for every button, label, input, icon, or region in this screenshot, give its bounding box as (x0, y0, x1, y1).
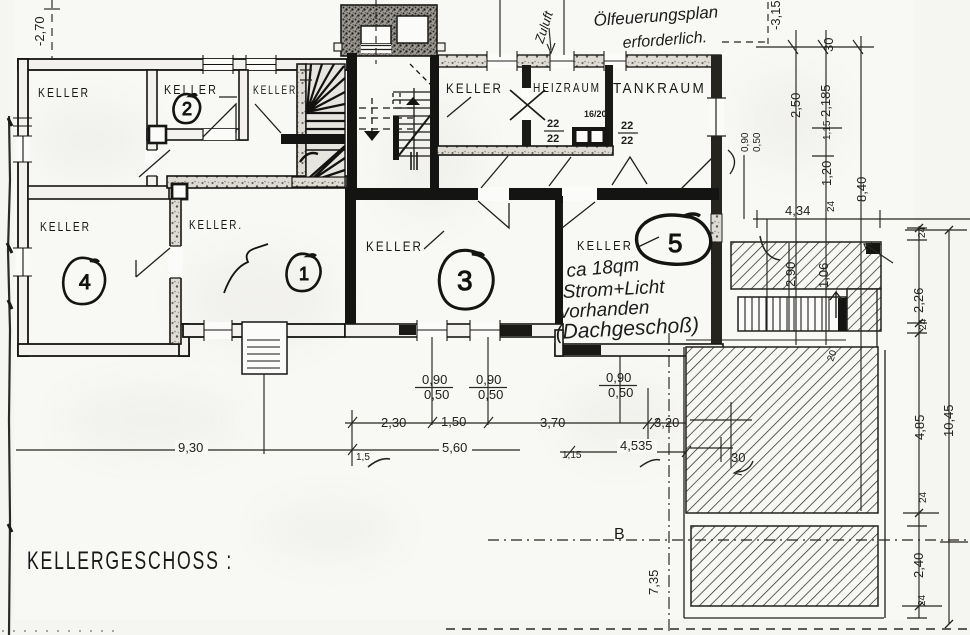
svg-text:24: 24 (918, 491, 929, 503)
svg-text:0,90: 0,90 (606, 370, 631, 385)
svg-text:0,50: 0,50 (424, 387, 449, 402)
svg-text:KELLER.: KELLER. (189, 217, 243, 232)
svg-text:1: 1 (299, 264, 309, 284)
svg-text:22: 22 (547, 133, 559, 145)
svg-text:2,50: 2,50 (788, 93, 803, 118)
svg-text:3: 3 (457, 265, 473, 296)
svg-text:KELLER: KELLER (38, 85, 90, 100)
svg-text:0,90: 0,90 (422, 372, 447, 387)
svg-text:KELLER: KELLER (40, 219, 91, 234)
svg-text:2,40: 2,40 (911, 553, 926, 578)
svg-text:1,06: 1,06 (816, 263, 831, 288)
svg-text:1,15: 1,15 (562, 450, 582, 461)
svg-text:8,40: 8,40 (854, 177, 869, 202)
svg-text:9,30: 9,30 (178, 440, 203, 455)
svg-text:2: 2 (182, 99, 192, 119)
svg-text:KELLER: KELLER (366, 238, 423, 254)
svg-text:0,90: 0,90 (740, 132, 751, 152)
svg-text:2,90: 2,90 (783, 262, 798, 287)
svg-text:1,20: 1,20 (819, 161, 834, 186)
svg-text:16/20: 16/20 (584, 109, 607, 119)
svg-text:HEIZRAUM: HEIZRAUM (533, 80, 601, 95)
svg-text:KELLER: KELLER (577, 238, 633, 253)
svg-text:1,15: 1,15 (822, 120, 833, 140)
svg-text:0,90: 0,90 (476, 372, 501, 387)
svg-text:22: 22 (621, 120, 633, 132)
svg-text:30: 30 (821, 38, 836, 52)
svg-text:1,50: 1,50 (441, 414, 466, 429)
svg-text:KELLERGESCHOSS :: KELLERGESCHOSS : (27, 547, 233, 575)
svg-text:0,50: 0,50 (478, 387, 503, 402)
svg-text:4,535: 4,535 (620, 438, 653, 453)
svg-text:22: 22 (547, 118, 559, 130)
svg-text:3,20: 3,20 (654, 415, 679, 430)
svg-text:-2,70: -2,70 (32, 16, 47, 46)
svg-text:-3,15: -3,15 (768, 0, 783, 30)
svg-text:3,70: 3,70 (540, 415, 565, 430)
svg-text:B: B (614, 526, 625, 543)
svg-text:4: 4 (79, 271, 91, 294)
svg-text:0,50: 0,50 (752, 132, 763, 152)
svg-text:TANKRAUM: TANKRAUM (613, 80, 706, 97)
svg-text:24: 24 (826, 200, 837, 212)
svg-text:KELLER: KELLER (446, 80, 503, 96)
svg-text:22: 22 (621, 135, 633, 147)
svg-text:30: 30 (731, 450, 745, 465)
svg-text:24: 24 (917, 594, 928, 606)
svg-text:KELLER: KELLER (253, 83, 297, 97)
svg-text:10,45: 10,45 (941, 404, 956, 437)
svg-text:5,60: 5,60 (442, 440, 467, 455)
svg-text:24: 24 (917, 226, 928, 238)
svg-text:2,30: 2,30 (381, 415, 406, 430)
svg-text:0,50: 0,50 (608, 385, 633, 400)
svg-text:1,5: 1,5 (356, 452, 370, 463)
svg-text:4,85: 4,85 (912, 415, 927, 440)
svg-text:2,185: 2,185 (818, 84, 833, 117)
svg-text:4,34: 4,34 (785, 203, 810, 218)
svg-text:7,35: 7,35 (646, 570, 661, 595)
svg-text:5: 5 (668, 228, 682, 258)
svg-text:24: 24 (918, 318, 929, 330)
svg-text:2,26: 2,26 (911, 288, 926, 313)
